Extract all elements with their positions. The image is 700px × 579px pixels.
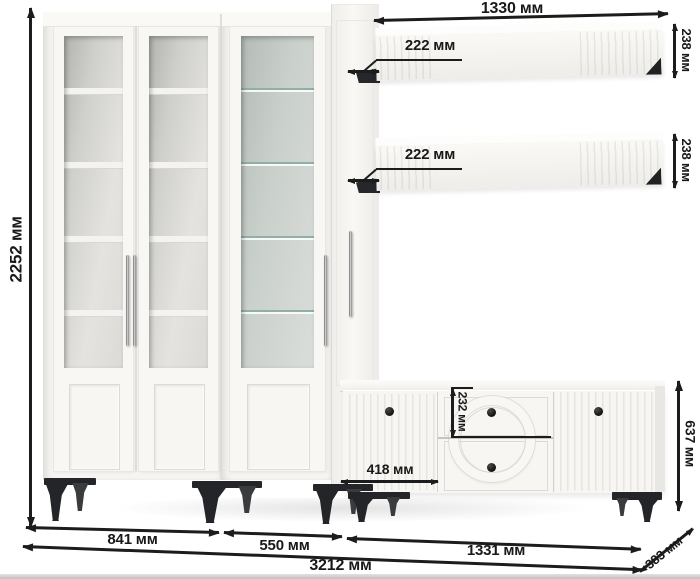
dim-shelf2-depth-arrow	[348, 179, 379, 182]
dim-shelf2-thickness-label: 238 мм	[679, 133, 693, 187]
shelf-1-flute-right	[580, 31, 661, 76]
dim-drawer-height-arrow	[451, 389, 454, 437]
door-3-handle	[324, 255, 327, 346]
dim-shelf1-depth-label: 222 мм	[396, 38, 464, 55]
dim-shelf2-thickness-arrow	[673, 134, 676, 188]
dim-tv-door-width-label: 418 мм	[352, 462, 428, 477]
dim-tv-height-label: 637 мм	[682, 414, 697, 474]
glass-pane-2	[149, 36, 208, 368]
floor-edge-strip	[0, 574, 700, 579]
door-1-handle	[126, 255, 129, 346]
dim-tv-door-width-arrow	[341, 480, 438, 483]
cabinet-seam	[220, 14, 222, 478]
door-gap	[135, 26, 137, 472]
dim-shelf1-thickness-arrow	[673, 24, 676, 78]
tv-seam-right	[553, 392, 554, 492]
furniture-dimension-diagram: 2252 мм 1330 мм 238 мм 238 мм 222 мм 222…	[0, 0, 700, 579]
dim-shelf2-depth-underline	[376, 168, 462, 170]
tv-stand-side	[655, 386, 665, 492]
tv-drawer-bottom-knob	[487, 463, 496, 472]
dim-shelf-length-label: 1330 мм	[462, 0, 562, 18]
dim-drawer-height-label: 232 мм	[455, 387, 468, 437]
tv-right-door-knob	[594, 407, 603, 416]
door-2-handle	[133, 255, 136, 346]
dim-total-width-label: 3212 мм	[298, 557, 383, 575]
tall-column-handle	[349, 231, 352, 317]
door-2-lower-panel	[154, 384, 205, 470]
dim-depth-label: 383 мм	[635, 527, 694, 578]
dim-total-height-arrow	[29, 8, 32, 527]
door-1-lower-panel	[69, 384, 120, 470]
dim-tv-width-label: 1331 мм	[457, 543, 535, 560]
tv-right-door	[553, 392, 653, 491]
cabinet-cornice	[43, 12, 331, 27]
dim-shelf1-thickness-label: 238 мм	[679, 23, 693, 77]
door-3-lower-panel	[247, 384, 310, 470]
dim-tv-height-arrow	[677, 381, 680, 511]
shelf-2-flute-right	[580, 141, 661, 186]
tv-seam-left	[437, 392, 438, 492]
tv-left-door-knob	[385, 407, 394, 416]
dim-bookcase-width-label: 841 мм	[95, 532, 170, 549]
tv-drawer-top-knob	[487, 408, 496, 417]
dim-total-height-label: 2252 мм	[8, 201, 27, 297]
glass-pane-1	[64, 36, 123, 368]
floor-shadow	[30, 498, 670, 532]
dim-shelf1-depth-underline	[376, 59, 462, 61]
dim-shelf1-depth-arrow	[348, 70, 379, 73]
glass-pane-3	[241, 36, 314, 368]
dim-display-width-label: 550 мм	[247, 538, 322, 555]
dim-shelf2-depth-label: 222 мм	[396, 147, 464, 164]
